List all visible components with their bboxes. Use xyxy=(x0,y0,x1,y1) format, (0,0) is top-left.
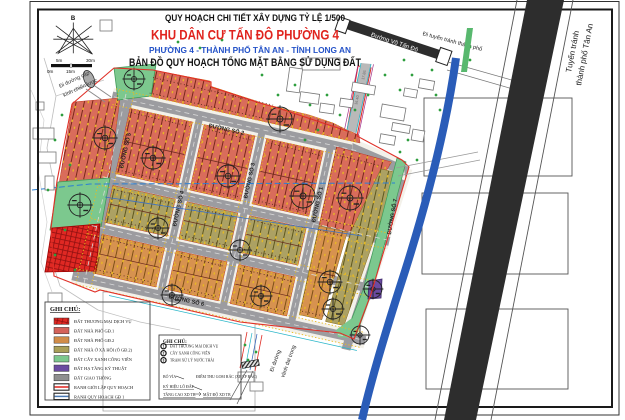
svg-text:2: 2 xyxy=(163,352,165,356)
svg-text:ĐẤT NHÀ PHỐ GĐ.2: ĐẤT NHÀ PHỐ GĐ.2 xyxy=(74,338,114,343)
svg-text:30m: 30m xyxy=(86,58,95,63)
svg-text:B: B xyxy=(71,16,76,22)
svg-text:TẦNG CAO XD TB: TẦNG CAO XD TB xyxy=(163,392,196,397)
svg-text:RANH QUY HOẠCH GĐ 1: RANH QUY HOẠCH GĐ 1 xyxy=(74,394,124,399)
svg-text:BẢN ĐỒ QUY HOẠCH TỔNG MẶT BẰNG: BẢN ĐỒ QUY HOẠCH TỔNG MẶT BẰNG SỬ DỤNG Đ… xyxy=(129,56,361,69)
svg-text:QUY HOẠCH CHI TIẾT XÂY DỰNG TỶ: QUY HOẠCH CHI TIẾT XÂY DỰNG TỶ LỆ 1/500 xyxy=(165,12,345,23)
svg-text:ĐẤT CÂY XANH CÔNG VIÊN: ĐẤT CÂY XANH CÔNG VIÊN xyxy=(74,357,133,362)
svg-text:ĐIỂM THU GOM RÁC (XE ÉP RÁC): ĐIỂM THU GOM RÁC (XE ÉP RÁC) xyxy=(196,374,258,379)
svg-text:3: 3 xyxy=(163,359,165,363)
svg-text:ĐẤT NHÀ PHỐ GĐ.1: ĐẤT NHÀ PHỐ GĐ.1 xyxy=(74,329,114,334)
svg-text:KÝ HIỆU LÔ ĐẤT: KÝ HIỆU LÔ ĐẤT xyxy=(163,384,195,389)
svg-text:MẬT ĐỘ XD TB: MẬT ĐỘ XD TB xyxy=(203,392,231,397)
svg-text:15m: 15m xyxy=(66,69,75,74)
svg-text:BÓ VỈA: BÓ VỈA xyxy=(163,374,176,379)
svg-text:5m: 5m xyxy=(56,58,63,63)
svg-text:KHU DÂN CƯ TẤN ĐÔ PHƯỜNG 4: KHU DÂN CƯ TẤN ĐÔ PHƯỜNG 4 xyxy=(151,26,339,43)
svg-text:0m: 0m xyxy=(47,69,54,74)
svg-text:GHI CHÚ:: GHI CHÚ: xyxy=(50,305,80,313)
svg-text:1: 1 xyxy=(163,345,165,349)
svg-text:ĐẤT HẠ TẦNG KỸ THUẬT: ĐẤT HẠ TẦNG KỸ THUẬT xyxy=(74,366,127,371)
svg-text:ĐẤT THƯƠNG MẠI DỊCH VỤ: ĐẤT THƯƠNG MẠI DỊCH VỤ xyxy=(74,319,132,324)
svg-text:RANH GIỚI LẬP QUY HOẠCH: RANH GIỚI LẬP QUY HOẠCH xyxy=(74,385,134,390)
svg-text:ĐẤT NHÀ Ở XÃ HỘI (Ô GĐ.2): ĐẤT NHÀ Ở XÃ HỘI (Ô GĐ.2) xyxy=(74,347,133,352)
svg-text:ĐẤT THƯƠNG MẠI DỊCH VỤ: ĐẤT THƯƠNG MẠI DỊCH VỤ xyxy=(170,344,219,349)
svg-text:ĐẤT GIAO THÔNG: ĐẤT GIAO THÔNG xyxy=(74,376,112,381)
svg-text:TRẠM XỬ LÝ NƯỚC THẢI: TRẠM XỬ LÝ NƯỚC THẢI xyxy=(170,358,215,363)
svg-text:CÂY XANH CÔNG VIÊN: CÂY XANH CÔNG VIÊN xyxy=(170,351,211,356)
svg-text:PHƯỜNG 4 - THÀNH PHỐ TÂN AN -: PHƯỜNG 4 - THÀNH PHỐ TÂN AN - TỈNH LONG … xyxy=(149,44,351,55)
